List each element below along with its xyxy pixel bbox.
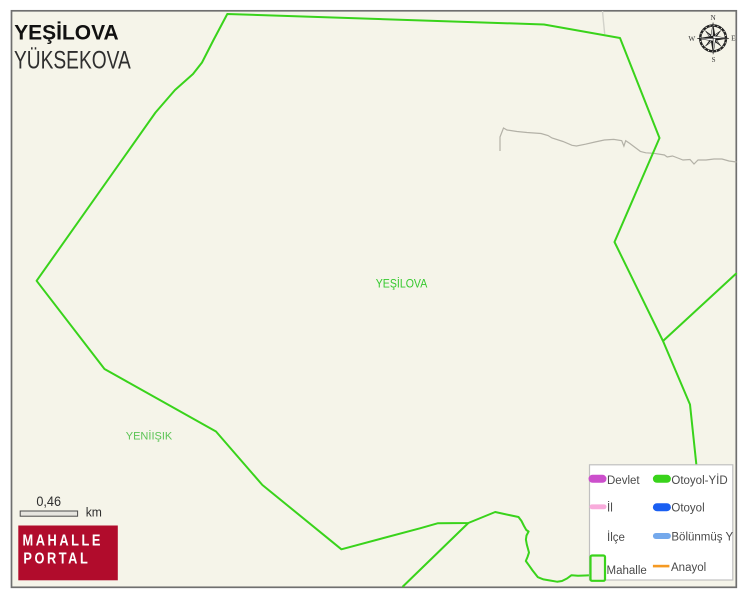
svg-text:Bölünmüş Y: Bölünmüş Y xyxy=(671,532,733,544)
svg-text:km: km xyxy=(86,505,102,520)
svg-text:0,46: 0,46 xyxy=(36,494,61,509)
svg-text:Otoyol-YİD: Otoyol-YİD xyxy=(671,474,727,487)
svg-text:İlçe: İlçe xyxy=(607,531,625,544)
svg-text:E: E xyxy=(731,34,736,43)
svg-text:Mahalle: Mahalle xyxy=(607,565,647,577)
svg-text:YENİIŞIK: YENİIŞIK xyxy=(126,430,173,443)
svg-text:Anayol: Anayol xyxy=(671,562,706,574)
svg-text:Devlet: Devlet xyxy=(607,475,640,487)
svg-text:PORTAL: PORTAL xyxy=(23,550,90,568)
svg-text:İl: İl xyxy=(607,502,613,515)
svg-text:MAHALLE: MAHALLE xyxy=(23,532,103,550)
svg-text:YEŞİLOVA: YEŞİLOVA xyxy=(14,20,119,44)
svg-text:YÜKSEKOVA: YÜKSEKOVA xyxy=(14,47,131,75)
svg-text:N: N xyxy=(710,13,716,22)
svg-text:YEŞİLOVA: YEŞİLOVA xyxy=(376,277,428,291)
svg-text:S: S xyxy=(711,55,715,64)
svg-text:W: W xyxy=(688,34,695,43)
svg-text:Otoyol: Otoyol xyxy=(671,503,704,515)
